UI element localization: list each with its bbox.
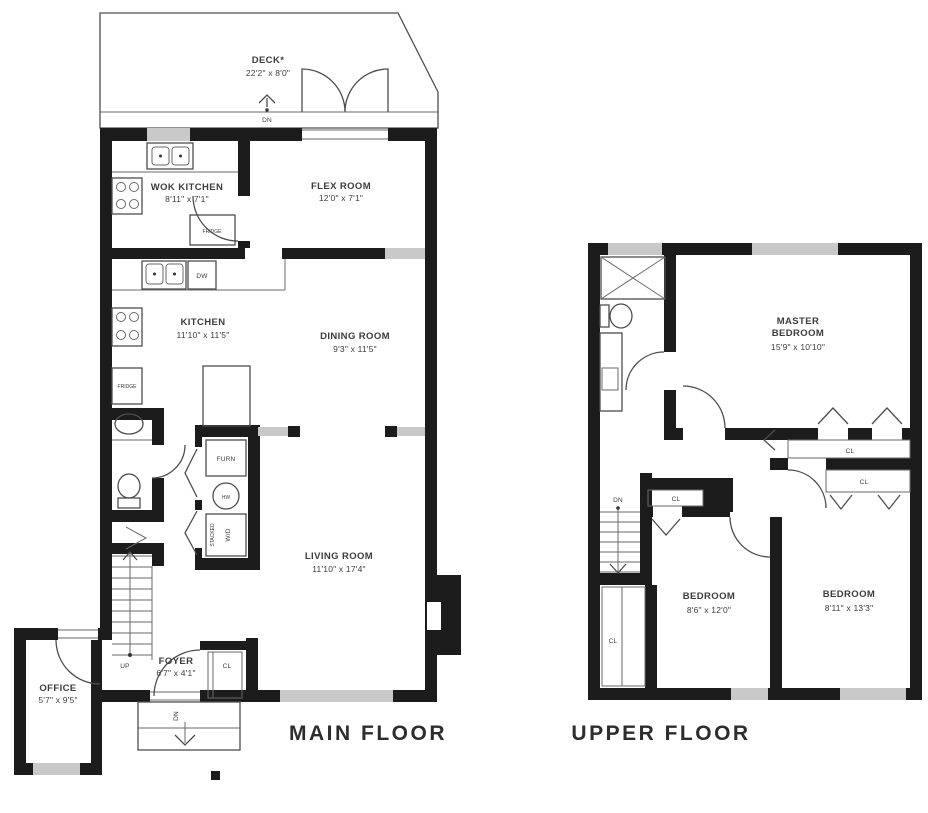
bedroom-left-door-arc: [730, 517, 770, 557]
dining-room-label: DINING ROOM: [320, 331, 390, 342]
bedroom-left-dims: 8'6" x 12'0": [687, 605, 731, 615]
wok-sink-drain-left: [159, 155, 162, 158]
main-floor-title: MAIN FLOOR: [289, 722, 447, 745]
master-closet-bifold-left: [818, 408, 848, 424]
deck-dims: 22'2" x 8'0": [246, 68, 290, 78]
living-room-dims: 11'10" x 17'4": [312, 564, 366, 574]
master-bedroom-label-2: BEDROOM: [772, 328, 824, 339]
upper-toilet-tank: [600, 305, 609, 327]
kitchen-fridge-label: FRIDGE: [118, 384, 138, 390]
upper-floor-plan: MASTER BEDROOM 15'9" x 10'10" CL CL CL D…: [588, 243, 922, 700]
bathroom-door-arc: [626, 352, 664, 390]
master-door-arc: [683, 386, 725, 428]
flex-room-dims: 12'0" x 7'1": [319, 193, 363, 203]
kitchen-burner-3: [117, 331, 126, 340]
kitchen-dims: 11'10" x 11'5": [177, 330, 230, 340]
upper-stairs: [600, 506, 640, 573]
wok-sink-drain-right: [179, 155, 182, 158]
vanity-counter: [600, 333, 622, 411]
wok-burner-3: [117, 200, 126, 209]
master-bedroom-dims: 15'9" x 10'10": [771, 342, 825, 352]
fireplace-firebox: [427, 602, 441, 630]
upper-stair-run-dot: [616, 506, 620, 510]
wok-burner-1: [117, 183, 126, 192]
stacked-label: STACKED: [210, 523, 216, 547]
foyer-closet-label: CL: [223, 663, 232, 670]
dining-room-dims: 9'3" x 11'5": [333, 344, 377, 354]
bedroom-right-closet-bifold-right: [878, 495, 900, 509]
kitchen-fixtures: [112, 259, 285, 426]
kitchen-burner-1: [117, 313, 126, 322]
dishwasher-label: DW: [196, 273, 208, 280]
master-closet-bifold-right: [872, 408, 902, 424]
bedroom-left-label: BEDROOM: [683, 591, 735, 602]
hot-water-label: HW: [222, 495, 231, 501]
wok-burner-2: [130, 183, 139, 192]
french-doors: [302, 69, 388, 112]
deck-down-arrow-icon: [259, 95, 275, 107]
shower-cross-lines: [601, 257, 665, 299]
toilet-tank: [118, 498, 140, 508]
powder-door-arc: [152, 445, 185, 478]
foyer-dims: 6'7" x 4'1": [156, 668, 195, 678]
wok-burner-4: [130, 200, 139, 209]
upper-toilet-bowl: [610, 304, 632, 328]
wok-fridge-label: FRIDGE: [203, 229, 223, 235]
furnace-label: FURN: [217, 456, 236, 463]
floorplan-canvas: DECK* 22'2" x 8'0" DN WOK KITCHEN 8'11" …: [0, 0, 928, 813]
stairs-up-label: UP: [120, 663, 129, 670]
master-closet-label: CL: [846, 448, 855, 455]
utility-bifold-upper: [185, 449, 197, 497]
upper-bathroom: [600, 257, 665, 411]
hall-closet-interior: [602, 587, 645, 686]
wok-kitchen-label: WOK KITCHEN: [151, 182, 223, 193]
upper-stairs-dn-label: DN: [613, 497, 623, 504]
stair-treads: [112, 556, 152, 655]
bedroom-right-dims: 8'11" x 13'3": [825, 603, 874, 613]
hall-closet-label: CL: [609, 638, 618, 645]
bedroom-right-closet-bifold-left: [830, 495, 852, 509]
kitchen-sink-drain-right: [173, 273, 176, 276]
vanity-sink: [602, 368, 618, 390]
deck-dn-label: DN: [262, 117, 272, 124]
kitchen-sink-unit: [142, 261, 186, 289]
porch-outline: [138, 702, 240, 750]
deck-arrow-dot: [265, 108, 268, 111]
toilet-bowl: [118, 474, 140, 498]
upper-floor-title: UPPER FLOOR: [571, 722, 750, 745]
bedroom-left-closet-label: CL: [672, 496, 681, 503]
foyer-label: FOYER: [159, 656, 194, 667]
washer-dryer-label: W/D: [225, 528, 232, 541]
bedroom-right-door-arc: [788, 470, 826, 508]
kitchen-burner-2: [130, 313, 139, 322]
upper-floor-walls: [588, 243, 922, 700]
powder-room: [112, 414, 185, 508]
main-floor-walls: [14, 128, 461, 780]
wok-kitchen-dims: 8'11" x 7'1": [165, 194, 209, 204]
master-bedroom-label-1: MASTER: [777, 316, 820, 327]
porch-dn-label: DN: [173, 711, 180, 721]
bedroom-left-closet-bifold: [652, 519, 680, 535]
main-floor-plan: DECK* 22'2" x 8'0" DN WOK KITCHEN 8'11" …: [14, 13, 461, 780]
stair-run-dot: [128, 653, 132, 657]
kitchen-island: [203, 366, 250, 426]
floorplan-svg: DECK* 22'2" x 8'0" DN WOK KITCHEN 8'11" …: [0, 0, 928, 813]
bedroom-right-closet-label: CL: [860, 479, 869, 486]
wok-stove: [112, 178, 142, 214]
upper-stair-treads: [600, 512, 640, 572]
bedroom-right-label: BEDROOM: [823, 589, 875, 600]
flex-room-label: FLEX ROOM: [311, 181, 371, 192]
kitchen-sink-drain-left: [153, 273, 156, 276]
kitchen-label: KITCHEN: [180, 317, 225, 328]
living-room-label: LIVING ROOM: [305, 551, 373, 562]
office-dims: 5'7" x 9'5": [38, 695, 77, 705]
kitchen-burner-4: [130, 331, 139, 340]
deck-label: DECK*: [252, 55, 285, 66]
office-label: OFFICE: [39, 683, 76, 694]
